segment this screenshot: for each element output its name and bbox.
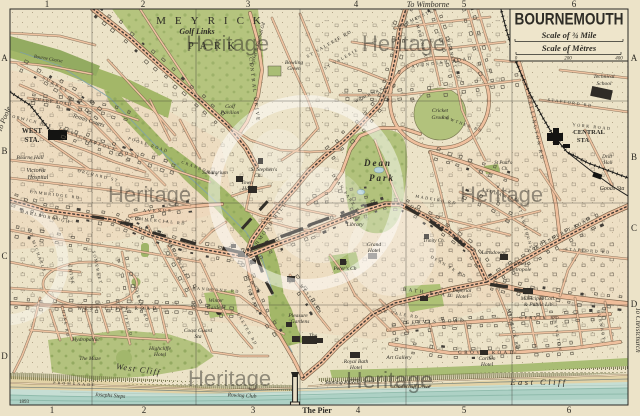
svg-text:6: 6 xyxy=(572,0,577,9)
svg-text:4: 4 xyxy=(356,405,361,415)
svg-text:Scale of ¾ Mile: Scale of ¾ Mile xyxy=(542,30,597,40)
svg-text:Art Gallery: Art Gallery xyxy=(385,355,412,361)
svg-text:The Pier: The Pier xyxy=(302,406,332,415)
svg-text:WEST: WEST xyxy=(22,127,43,135)
svg-text:Highcliffe: Highcliffe xyxy=(148,345,172,352)
svg-text:Undercliff Drive: Undercliff Drive xyxy=(394,383,431,390)
svg-text:Free: Free xyxy=(349,215,361,221)
svg-text:Scale of Mètres: Scale of Mètres xyxy=(542,43,597,53)
svg-text:Trinity Ch.: Trinity Ch. xyxy=(423,239,445,244)
svg-text:School: School xyxy=(597,81,612,87)
svg-text:GERVIS RD: GERVIS RD xyxy=(519,315,560,320)
svg-text:Heritage: Heritage xyxy=(188,366,271,391)
svg-text:A: A xyxy=(1,53,8,63)
svg-text:Hotel: Hotel xyxy=(153,352,167,358)
svg-text:Sta: Sta xyxy=(194,334,201,340)
svg-text:CENTRAL: CENTRAL xyxy=(573,129,605,136)
svg-text:Pavilion: Pavilion xyxy=(220,110,240,116)
svg-text:WEST CLIFF ROAD: WEST CLIFF ROAD xyxy=(77,307,158,312)
svg-text:Golf: Golf xyxy=(225,103,236,110)
svg-text:Winter: Winter xyxy=(209,298,225,304)
svg-text:Green: Green xyxy=(287,66,301,72)
svg-text:Technical: Technical xyxy=(593,74,615,80)
svg-text:1: 1 xyxy=(50,405,55,415)
svg-text:MEYRICK: MEYRICK xyxy=(156,15,270,27)
svg-text:Drill: Drill xyxy=(601,155,612,160)
svg-text:Ch.: Ch. xyxy=(254,173,262,179)
svg-text:D: D xyxy=(1,351,8,361)
svg-text:Dean: Dean xyxy=(363,158,392,168)
svg-text:Metropole: Metropole xyxy=(508,267,532,273)
svg-text:3: 3 xyxy=(246,0,251,9)
svg-text:PARK: PARK xyxy=(188,41,242,52)
svg-text:Hotel: Hotel xyxy=(367,248,381,254)
svg-text:Ground: Ground xyxy=(432,115,449,121)
svg-text:5: 5 xyxy=(462,0,467,9)
svg-text:1: 1 xyxy=(45,0,50,9)
svg-text:STA: STA xyxy=(577,137,589,144)
svg-text:STA.: STA. xyxy=(25,136,40,144)
svg-text:C: C xyxy=(1,251,7,261)
svg-text:The Maze: The Maze xyxy=(79,356,101,362)
svg-text:Pavilion: Pavilion xyxy=(303,339,323,345)
svg-text:2: 2 xyxy=(141,0,146,9)
svg-text:Library: Library xyxy=(346,222,364,228)
svg-text:6: 6 xyxy=(567,405,572,415)
svg-text:Bourne Hall: Bourne Hall xyxy=(16,155,44,161)
svg-text:A: A xyxy=(631,53,638,63)
svg-text:1893: 1893 xyxy=(19,400,30,405)
svg-text:400: 400 xyxy=(615,57,623,62)
svg-text:Golf Links: Golf Links xyxy=(179,27,214,36)
svg-text:To Wimborne: To Wimborne xyxy=(407,0,450,9)
svg-text:Lansdowne: Lansdowne xyxy=(480,250,507,256)
svg-text:Park: Park xyxy=(369,173,395,183)
svg-text:Hall: Hall xyxy=(603,161,614,166)
svg-text:Sanatorium: Sanatorium xyxy=(202,170,228,176)
svg-text:Cricket: Cricket xyxy=(432,108,449,114)
svg-text:Gardens: Gardens xyxy=(291,319,310,325)
svg-text:B: B xyxy=(1,146,7,156)
svg-text:BOURNEMOUTH: BOURNEMOUTH xyxy=(515,11,624,29)
svg-text:Hospital: Hospital xyxy=(27,175,49,181)
svg-text:Bathing Places: Bathing Places xyxy=(325,380,358,386)
svg-text:GROVE ROAD: GROVE ROAD xyxy=(458,351,516,356)
svg-text:Ch.: Ch. xyxy=(501,167,508,172)
svg-text:East Cliff: East Cliff xyxy=(509,377,567,387)
svg-text:Peter's Ch: Peter's Ch xyxy=(332,266,356,272)
svg-text:Hotel: Hotel xyxy=(349,365,363,371)
svg-text:2: 2 xyxy=(142,405,147,415)
svg-text:Victoria: Victoria xyxy=(26,168,45,174)
svg-text:To Christchurch: To Christchurch xyxy=(634,307,640,353)
svg-text:Hydropathic: Hydropathic xyxy=(71,337,100,343)
svg-text:Gardens: Gardens xyxy=(207,305,226,311)
svg-text:Heritage: Heritage xyxy=(362,31,445,56)
svg-text:Hotel: Hotel xyxy=(480,362,494,368)
svg-text:5: 5 xyxy=(462,405,467,415)
svg-text:AVENUE: AVENUE xyxy=(143,208,173,213)
svg-text:C: C xyxy=(631,223,637,233)
svg-text:St Paul's: St Paul's xyxy=(494,161,512,166)
svg-text:B: B xyxy=(631,152,637,162)
svg-text:3: 3 xyxy=(251,405,256,415)
svg-text:Goods Sta: Goods Sta xyxy=(600,186,625,192)
svg-text:Hall: Hall xyxy=(241,186,252,192)
svg-text:4: 4 xyxy=(354,0,359,9)
svg-text:Hotel: Hotel xyxy=(455,294,469,300)
svg-text:& Public Lib: & Public Lib xyxy=(524,302,553,308)
svg-text:200: 200 xyxy=(564,57,572,62)
